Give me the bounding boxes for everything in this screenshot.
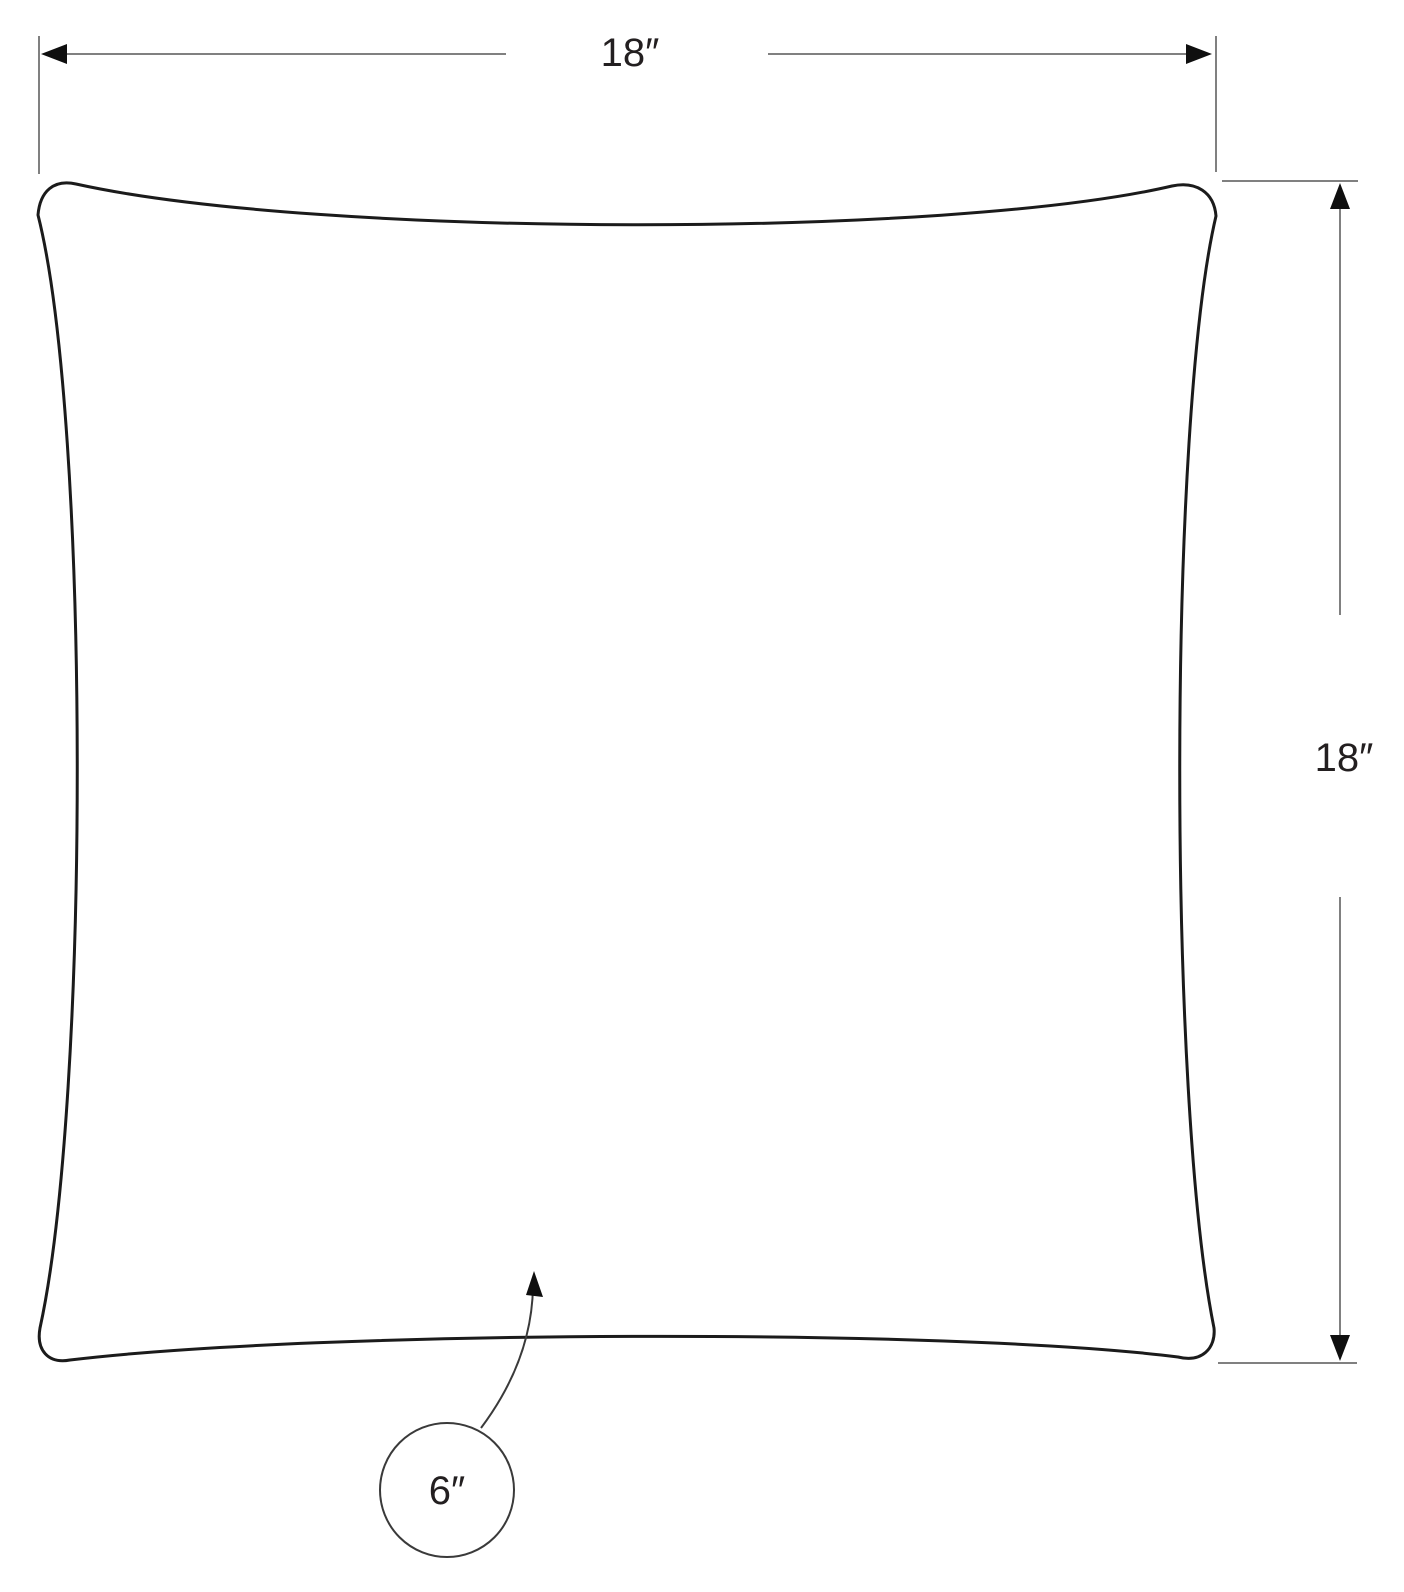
- callout-dimension-label: 6″: [429, 1469, 465, 1513]
- arrow-left-icon: [41, 44, 67, 64]
- pillow-outline: [38, 183, 1216, 1361]
- arrow-up-icon: [1330, 183, 1350, 209]
- top-dimension: 18″: [39, 31, 1216, 174]
- callout-leader-line: [481, 1286, 533, 1428]
- top-dimension-label: 18″: [601, 31, 660, 75]
- arrow-down-icon: [1330, 1335, 1350, 1361]
- arrow-right-icon: [1186, 44, 1212, 64]
- dimension-diagram: 18″ 18″ 6″: [0, 0, 1404, 1592]
- thickness-callout: 6″: [380, 1271, 543, 1557]
- right-dimension-label: 18″: [1315, 736, 1374, 780]
- callout-arrow-up-icon: [526, 1271, 543, 1297]
- diagram-canvas: 18″ 18″ 6″: [0, 0, 1404, 1592]
- right-dimension: 18″: [1218, 181, 1373, 1363]
